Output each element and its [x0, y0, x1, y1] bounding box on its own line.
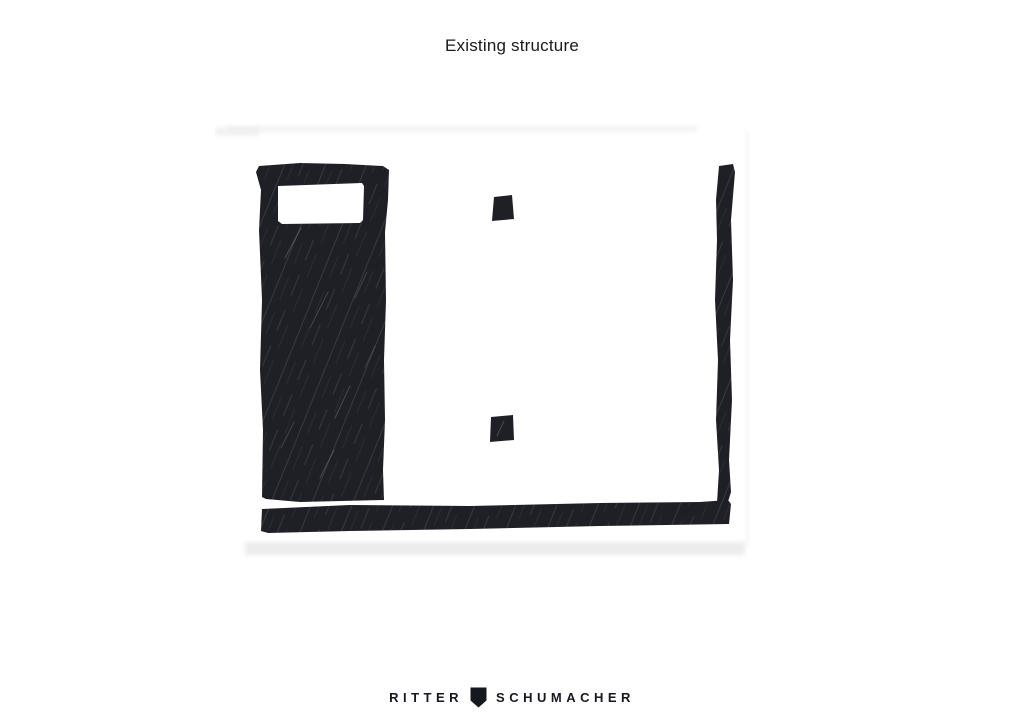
paper-smudge-topleft — [215, 127, 259, 136]
shield-icon — [470, 687, 487, 708]
page-title: Existing structure — [0, 36, 1024, 56]
sketch-canvas — [215, 118, 760, 565]
existing-wall-bottom — [261, 500, 731, 533]
column-lower — [490, 415, 514, 442]
paper-edge-right — [746, 132, 749, 546]
existing-wall-right — [715, 164, 735, 505]
slide: Existing structure — [0, 0, 1024, 723]
column-upper — [492, 195, 514, 221]
brand-logo: RITTER SCHUMACHER — [0, 687, 1024, 708]
window-opening — [278, 183, 364, 224]
paper-edge-top — [227, 126, 697, 132]
logo-text-schumacher: SCHUMACHER — [496, 687, 635, 708]
paper-shadow-bottom — [245, 542, 745, 555]
sketch-figure — [215, 118, 760, 565]
logo-text-ritter: RITTER — [389, 687, 463, 708]
